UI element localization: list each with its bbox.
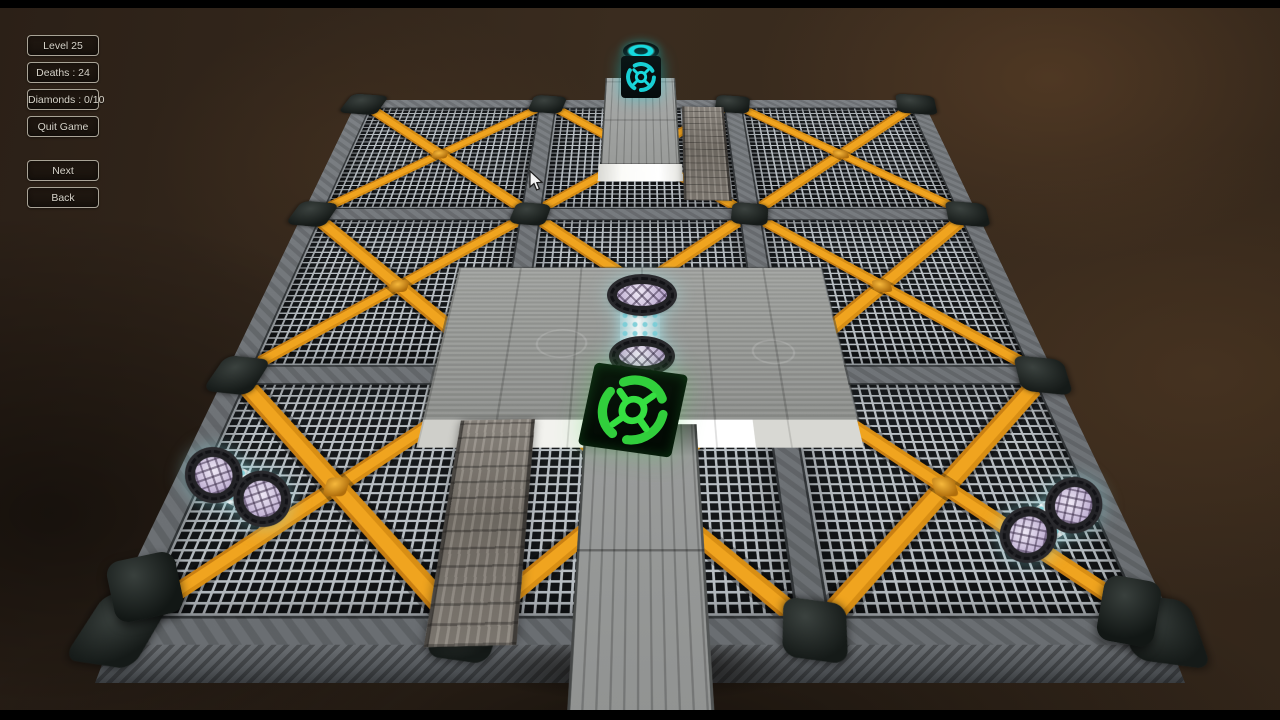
corner-stone: [895, 93, 938, 115]
letterbox-bottom: [0, 710, 1280, 720]
capsule-lens: [237, 474, 287, 523]
x-brace: [325, 108, 538, 207]
letterbox-top: [0, 0, 1280, 8]
capsule-lens: [617, 284, 667, 306]
deaths-counter-button[interactable]: Deaths : 24: [27, 62, 99, 83]
capsule-lens: [189, 451, 239, 500]
next-button[interactable]: Next: [27, 160, 99, 181]
capsule-disc: [610, 277, 674, 313]
goal-cube-front: [621, 56, 661, 98]
ring-decal: [750, 340, 797, 365]
mouse-cursor-icon: [529, 170, 544, 192]
green-ring-icon: [582, 363, 685, 457]
goal-cube[interactable]: [621, 42, 661, 100]
x-brace: [742, 108, 955, 207]
cyan-ring-icon: [623, 58, 659, 96]
ring-decal: [534, 329, 588, 358]
diamonds-counter-button[interactable]: Diamonds : 0/10: [27, 89, 99, 110]
rail-joint-stone: [527, 95, 567, 114]
rail-joint-stone: [782, 596, 848, 664]
green-switch-tile[interactable]: [578, 362, 689, 457]
game-scene: Level 25 Deaths : 24 Diamonds : 0/10 Qui…: [0, 8, 1280, 710]
back-button[interactable]: Back: [27, 187, 99, 208]
level-indicator-button[interactable]: Level 25: [27, 35, 99, 56]
hud-spacer: [27, 143, 99, 154]
mesh-tile: [742, 108, 955, 207]
wood-beam: [682, 107, 732, 201]
capsule-collectible[interactable]: [610, 277, 670, 373]
mesh-tile: [325, 108, 538, 207]
corner-stone: [1095, 573, 1164, 648]
rail-joint-stone: [730, 202, 768, 226]
capsule-lens: [619, 346, 665, 366]
hud-panel: Level 25 Deaths : 24 Diamonds : 0/10 Qui…: [27, 35, 99, 208]
game-window: Level 25 Deaths : 24 Diamonds : 0/10 Qui…: [0, 0, 1280, 720]
quit-game-button[interactable]: Quit Game: [27, 116, 99, 137]
